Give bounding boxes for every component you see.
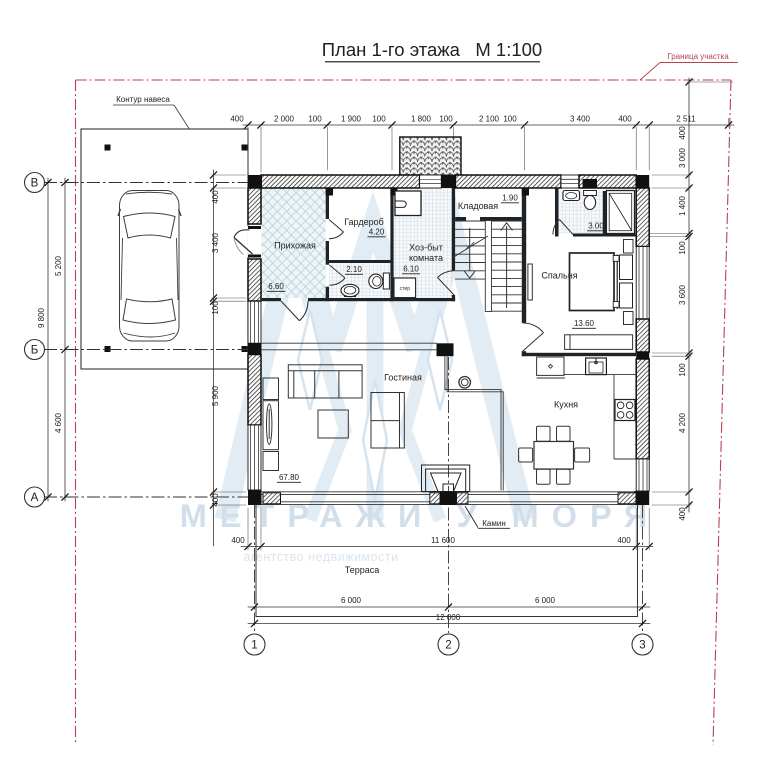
svg-text:2: 2 xyxy=(445,640,451,652)
svg-text:стир: стир xyxy=(400,286,411,292)
svg-text:3 400: 3 400 xyxy=(570,115,591,124)
svg-text:Камин: Камин xyxy=(482,519,506,528)
svg-text:Гостиная: Гостиная xyxy=(384,373,422,383)
svg-text:2.10: 2.10 xyxy=(346,265,362,274)
svg-text:1 800: 1 800 xyxy=(411,115,432,124)
svg-text:агентство недвижимости: агентство недвижимости xyxy=(244,550,399,564)
svg-text:400: 400 xyxy=(230,115,244,124)
svg-text:400: 400 xyxy=(231,536,245,545)
svg-text:5 200: 5 200 xyxy=(54,255,63,276)
svg-text:1: 1 xyxy=(251,640,257,652)
svg-text:План 1-го этажа М 1:100: План 1-го этажа М 1:100 xyxy=(322,39,542,60)
svg-text:3 000: 3 000 xyxy=(678,147,687,168)
svg-text:2 511: 2 511 xyxy=(676,115,696,124)
svg-text:400: 400 xyxy=(678,507,687,521)
svg-text:100: 100 xyxy=(503,115,517,124)
svg-text:Прихожая: Прихожая xyxy=(274,241,316,251)
svg-text:3.00: 3.00 xyxy=(588,222,604,231)
svg-text:комната: комната xyxy=(409,253,443,263)
svg-text:400: 400 xyxy=(618,115,632,124)
svg-text:Кухня: Кухня xyxy=(554,400,578,410)
svg-text:100: 100 xyxy=(439,115,453,124)
svg-text:400: 400 xyxy=(678,126,687,140)
svg-text:2 000: 2 000 xyxy=(274,115,295,124)
svg-text:3 600: 3 600 xyxy=(678,284,687,305)
svg-text:9 800: 9 800 xyxy=(37,307,46,328)
svg-text:Хоз-быт: Хоз-быт xyxy=(409,243,443,253)
svg-text:100: 100 xyxy=(211,301,220,315)
svg-text:67.80: 67.80 xyxy=(279,473,300,482)
svg-text:Б: Б xyxy=(31,345,39,357)
svg-text:100: 100 xyxy=(372,115,386,124)
svg-text:400: 400 xyxy=(211,190,220,204)
svg-text:11 600: 11 600 xyxy=(431,536,455,545)
svg-text:100: 100 xyxy=(308,115,322,124)
svg-text:Терраса: Терраса xyxy=(345,565,380,575)
svg-text:Спальня: Спальня xyxy=(541,271,577,281)
svg-text:Контур навеса: Контур навеса xyxy=(116,95,170,104)
svg-text:1 900: 1 900 xyxy=(341,115,362,124)
svg-text:А: А xyxy=(31,492,39,504)
svg-text:4 200: 4 200 xyxy=(678,412,687,433)
svg-text:3: 3 xyxy=(639,640,645,652)
svg-text:13.60: 13.60 xyxy=(574,319,595,328)
svg-text:4 600: 4 600 xyxy=(54,412,63,433)
svg-text:Граница участка: Граница участка xyxy=(667,52,729,61)
svg-text:6.10: 6.10 xyxy=(403,265,419,274)
svg-text:5 900: 5 900 xyxy=(211,385,220,406)
svg-text:В: В xyxy=(31,178,39,190)
svg-text:6.60: 6.60 xyxy=(268,282,284,291)
svg-text:100: 100 xyxy=(678,241,687,255)
svg-text:1.90: 1.90 xyxy=(502,194,518,203)
svg-text:400: 400 xyxy=(211,493,220,507)
svg-text:3 400: 3 400 xyxy=(211,232,220,253)
svg-text:100: 100 xyxy=(678,363,687,377)
svg-text:Гардероб: Гардероб xyxy=(344,217,384,227)
svg-text:2 100: 2 100 xyxy=(479,115,500,124)
svg-text:Кладовая: Кладовая xyxy=(458,201,498,211)
svg-text:12 000: 12 000 xyxy=(436,613,461,622)
svg-text:4.20: 4.20 xyxy=(369,228,385,237)
svg-text:6 000: 6 000 xyxy=(535,596,556,605)
svg-text:6 000: 6 000 xyxy=(341,596,362,605)
svg-text:1 400: 1 400 xyxy=(678,195,687,216)
svg-text:400: 400 xyxy=(617,536,631,545)
